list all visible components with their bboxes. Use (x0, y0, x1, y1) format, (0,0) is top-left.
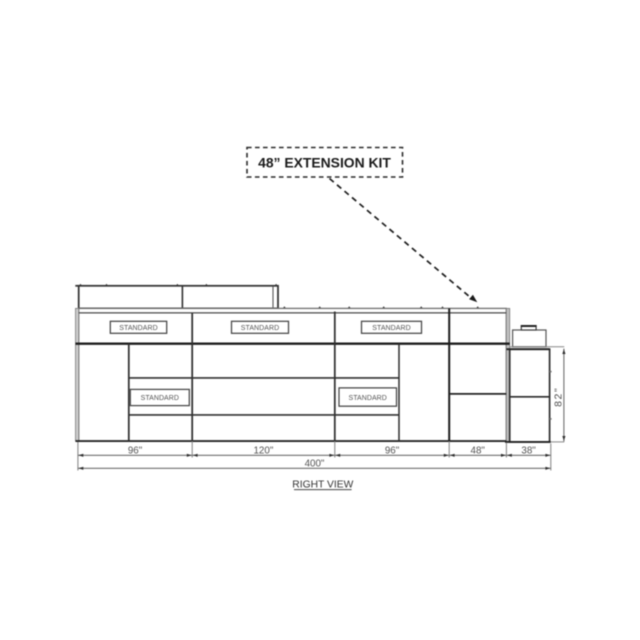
svg-text:48” EXTENSION KIT: 48” EXTENSION KIT (258, 155, 391, 171)
svg-text:48": 48" (471, 446, 486, 457)
svg-text:400": 400" (305, 459, 325, 470)
svg-text:STANDARD: STANDARD (372, 325, 410, 332)
svg-text:STANDARD: STANDARD (349, 395, 387, 402)
svg-text:120": 120" (253, 446, 273, 457)
svg-text:96": 96" (128, 446, 143, 457)
svg-text:38": 38" (521, 446, 536, 457)
svg-text:STANDARD: STANDARD (241, 325, 279, 332)
svg-text:STANDARD: STANDARD (119, 325, 157, 332)
svg-text:96": 96" (385, 446, 400, 457)
svg-text:82": 82" (552, 387, 564, 407)
svg-text:RIGHT VIEW: RIGHT VIEW (292, 480, 353, 491)
svg-text:STANDARD: STANDARD (141, 395, 179, 402)
